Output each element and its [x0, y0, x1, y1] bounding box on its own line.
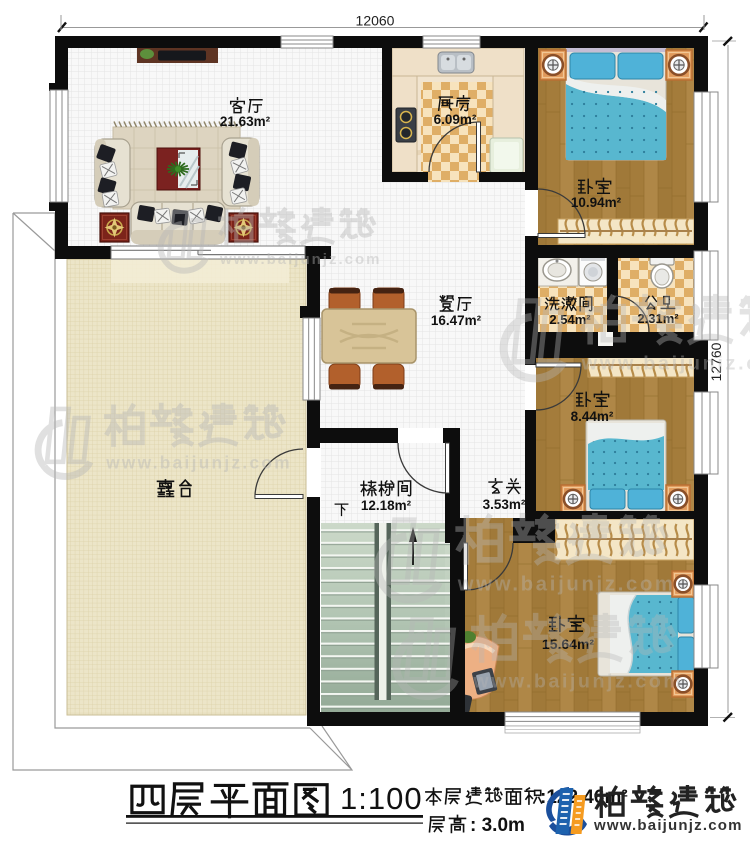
svg-text:10.94m²: 10.94m² [571, 195, 622, 210]
svg-text:8.44m²: 8.44m² [571, 409, 614, 424]
svg-text:www.baijunjz.com: www.baijunjz.com [219, 251, 381, 268]
svg-text:www.baijunjz.com: www.baijunjz.com [581, 353, 750, 375]
svg-text:3.53m²: 3.53m² [483, 497, 526, 512]
svg-text:12060: 12060 [356, 13, 395, 29]
svg-text:1:100: 1:100 [340, 781, 423, 816]
svg-text:: 3.0m: : 3.0m [470, 815, 525, 836]
svg-text:www.baijunjz.com: www.baijunjz.com [457, 573, 676, 595]
svg-text:6.09m²: 6.09m² [434, 112, 477, 127]
svg-text:www.baijunjz.com: www.baijunjz.com [593, 817, 743, 834]
svg-text:12.18m²: 12.18m² [361, 498, 412, 513]
svg-text:www.baijunjz.com: www.baijunjz.com [105, 453, 292, 473]
svg-text:www.baijunjz.com: www.baijunjz.com [472, 670, 683, 692]
svg-text:21.63m²: 21.63m² [220, 114, 271, 129]
svg-text:16.47m²: 16.47m² [431, 313, 482, 328]
